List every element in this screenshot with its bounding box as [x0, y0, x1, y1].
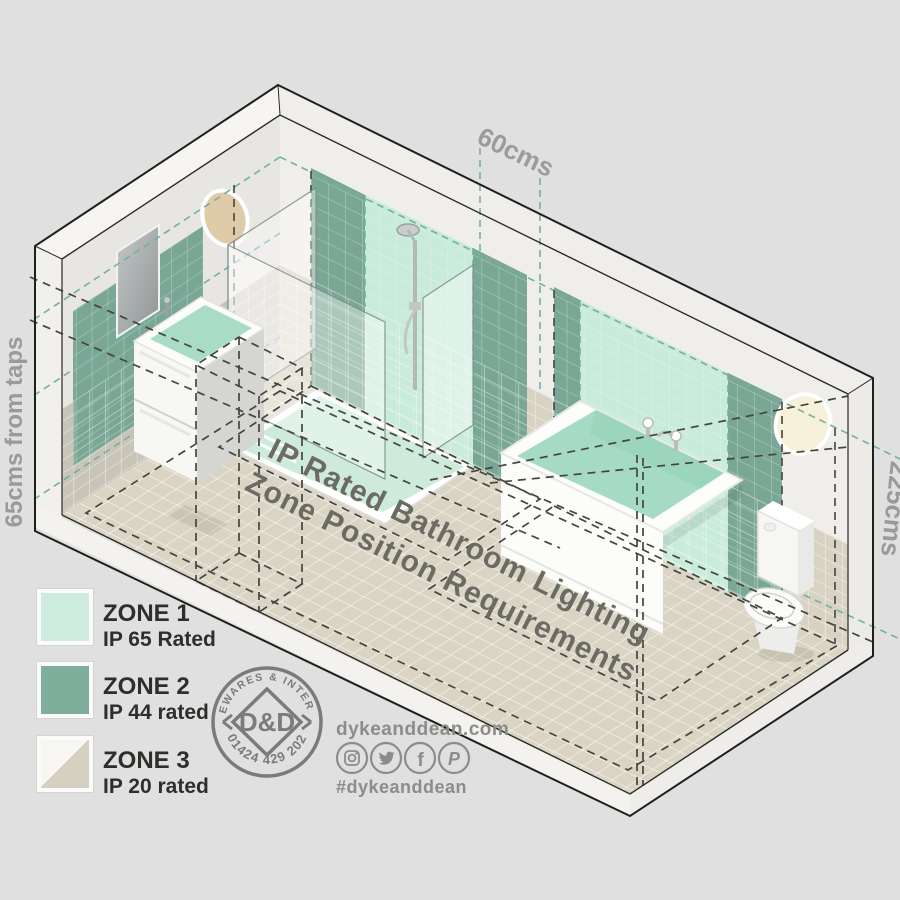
- website-text: dykeanddean.com: [336, 719, 509, 740]
- legend-rating-zone1: IP 65 Rated: [103, 628, 216, 651]
- logo-monogram: D&D: [239, 707, 295, 737]
- legend-label-zone3: ZONE 3: [103, 747, 190, 774]
- hashtag-text: #dykeanddean: [336, 777, 467, 797]
- svg-text:P: P: [448, 749, 461, 769]
- shower-valve: [409, 302, 421, 310]
- infographic-canvas: 60cms 65cms from taps 225cms IP Rated Ba…: [0, 0, 900, 900]
- dim-label-left: 65cms from taps: [1, 337, 28, 528]
- legend-label-zone1: ZONE 1: [103, 600, 190, 627]
- shower-glass-return: [423, 265, 473, 458]
- legend: ZONE 1 IP 65 Rated ZONE 2 IP 44 rated ZO…: [37, 589, 216, 798]
- basin-tap-spout: [164, 297, 170, 303]
- legend-swatch-zone2: [39, 664, 91, 716]
- wall-end-right: [848, 378, 873, 650]
- svg-text:f: f: [417, 750, 424, 771]
- legend-label-zone2: ZONE 2: [103, 673, 190, 700]
- toilet-flush-button: [764, 523, 776, 531]
- legend-rating-zone3: IP 20 rated: [103, 775, 209, 798]
- legend-rating-zone2: IP 44 rated: [103, 701, 209, 724]
- bathroom-zones-diagram: 60cms 65cms from taps 225cms IP Rated Ba…: [0, 0, 900, 900]
- toilet-tank-side: [799, 521, 814, 596]
- legend-swatch-zone1: [39, 591, 91, 643]
